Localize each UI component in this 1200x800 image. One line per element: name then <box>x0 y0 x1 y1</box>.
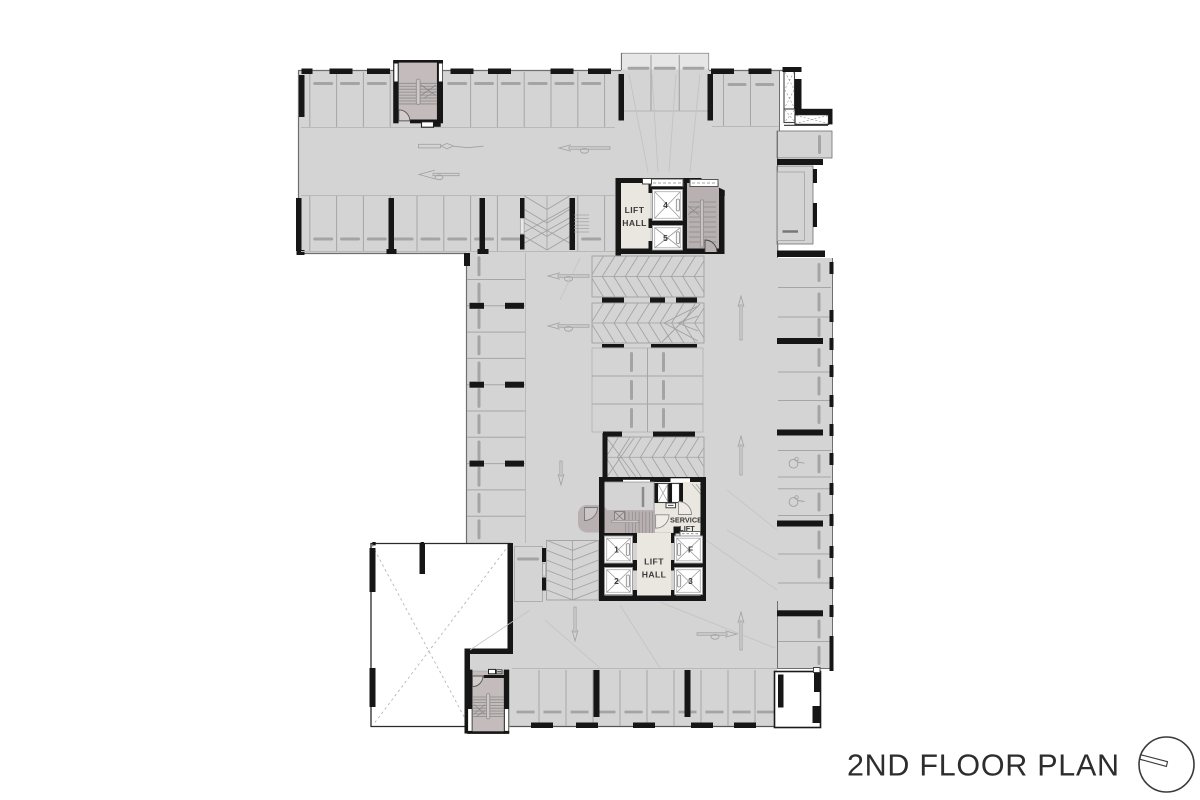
svg-text:F: F <box>688 545 693 555</box>
svg-text:HALL: HALL <box>622 218 647 228</box>
svg-text:LIFT: LIFT <box>625 205 645 215</box>
svg-text:4: 4 <box>663 200 668 210</box>
svg-text:LIFT: LIFT <box>644 557 664 567</box>
svg-text:1: 1 <box>614 545 619 555</box>
svg-text:5: 5 <box>663 233 668 243</box>
svg-text:3: 3 <box>688 576 693 586</box>
svg-text:2ND FLOOR PLAN: 2ND FLOOR PLAN <box>847 749 1120 783</box>
svg-text:2: 2 <box>614 576 619 586</box>
svg-text:HALL: HALL <box>642 570 667 580</box>
